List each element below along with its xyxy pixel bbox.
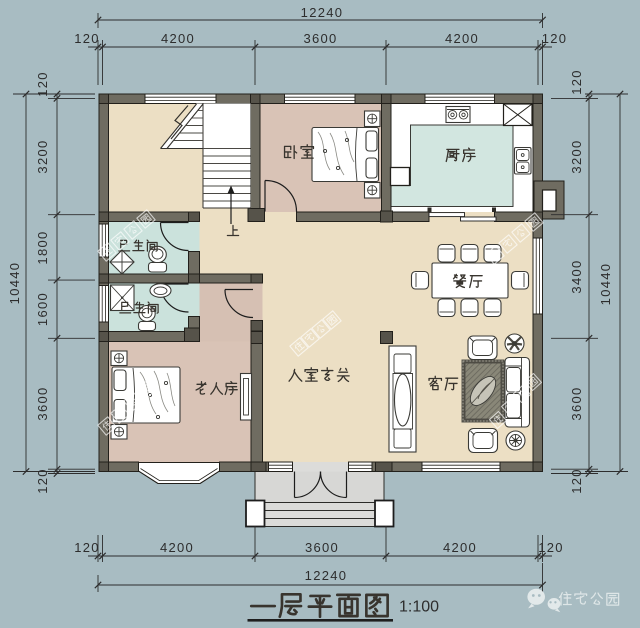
svg-text:3600: 3600 — [305, 540, 339, 555]
svg-text:120: 120 — [569, 468, 584, 494]
svg-text:120: 120 — [538, 540, 564, 555]
svg-text:3200: 3200 — [569, 139, 584, 173]
svg-text:120: 120 — [569, 69, 584, 95]
svg-text:4200: 4200 — [445, 31, 479, 46]
svg-text:10440: 10440 — [598, 263, 613, 306]
svg-text:12240: 12240 — [305, 568, 348, 583]
svg-text:120: 120 — [35, 71, 50, 97]
svg-text:10440: 10440 — [7, 262, 22, 305]
svg-text:3600: 3600 — [35, 386, 50, 420]
svg-text:120: 120 — [74, 31, 100, 46]
svg-text:3600: 3600 — [569, 386, 584, 420]
svg-text:4200: 4200 — [443, 540, 477, 555]
svg-text:1800: 1800 — [35, 230, 50, 264]
svg-text:3200: 3200 — [35, 139, 50, 173]
svg-text:12240: 12240 — [301, 5, 344, 20]
svg-text:120: 120 — [35, 468, 50, 494]
svg-text:120: 120 — [542, 31, 568, 46]
svg-text:4200: 4200 — [160, 540, 194, 555]
svg-text:1:100: 1:100 — [399, 599, 439, 616]
svg-text:4200: 4200 — [161, 31, 195, 46]
svg-text:120: 120 — [74, 540, 100, 555]
svg-text:1600: 1600 — [35, 292, 50, 326]
svg-text:3600: 3600 — [303, 31, 337, 46]
svg-text:3400: 3400 — [569, 259, 584, 293]
